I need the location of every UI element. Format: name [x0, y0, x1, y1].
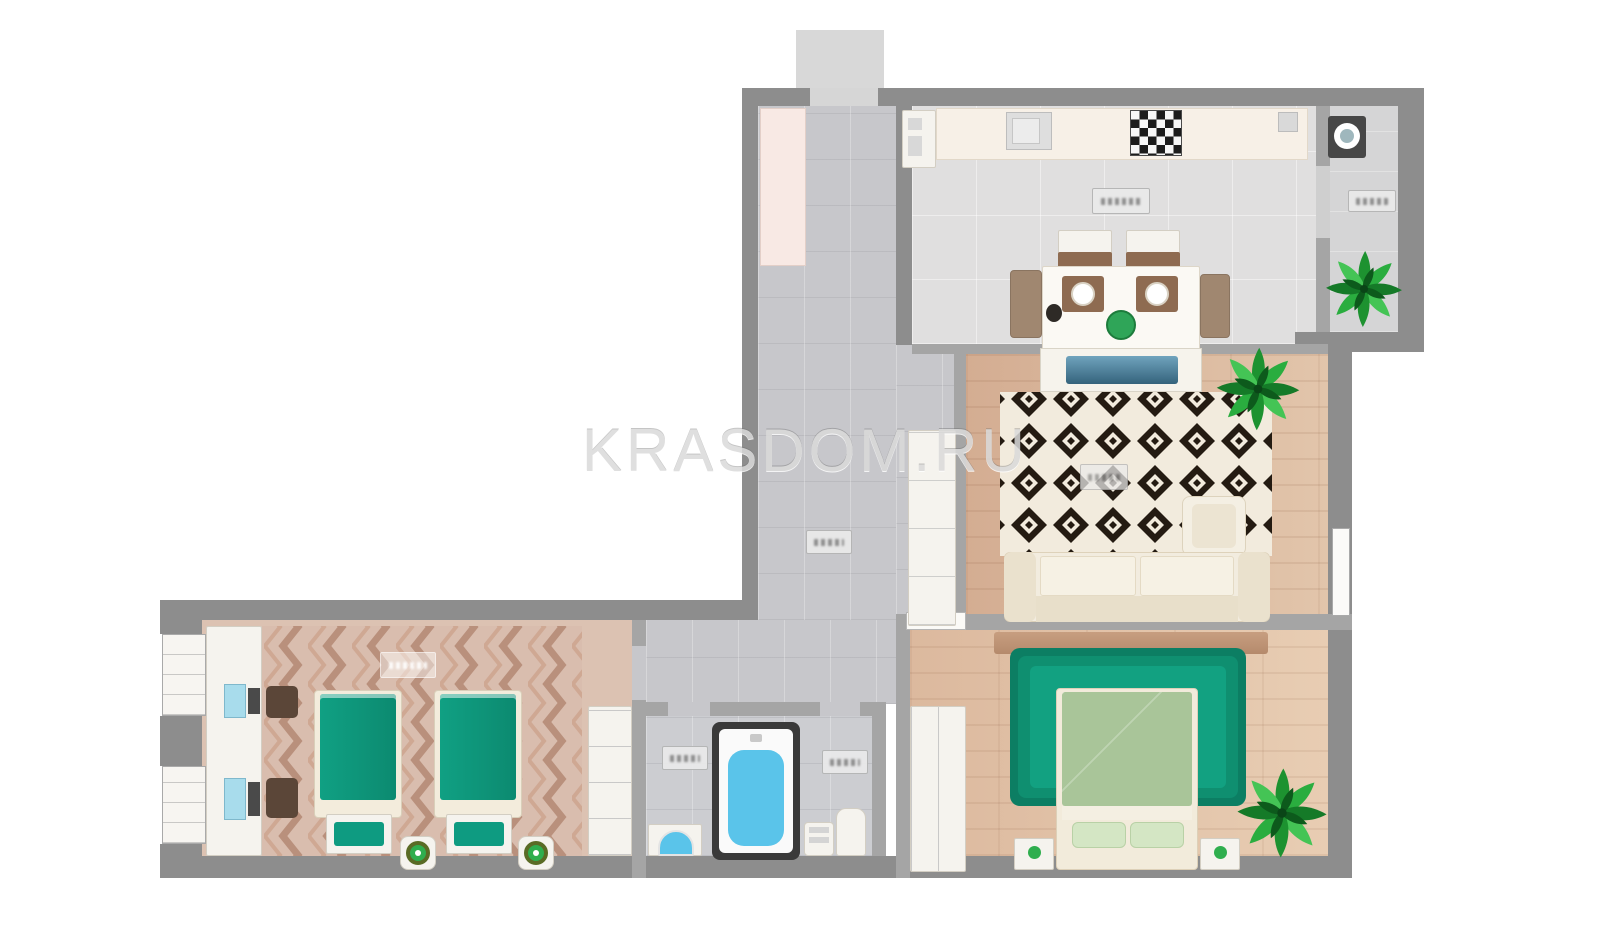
area-label-smudge — [1088, 474, 1120, 481]
wardrobe — [588, 706, 632, 856]
sofa-armrest — [1238, 552, 1270, 622]
floor-plan-canvas: KRASDOM.RU — [0, 0, 1600, 933]
area-label-smudge — [389, 662, 427, 669]
hall-cabinet — [908, 430, 956, 626]
nightstand-plant — [1214, 846, 1227, 859]
entry-closet — [760, 108, 806, 266]
bathtub-water — [728, 750, 784, 846]
area-label-smudge — [830, 759, 861, 766]
entry-door-opening — [810, 88, 878, 106]
area-label-badge-balcony — [1348, 190, 1396, 212]
desk-drawer-pull — [248, 782, 260, 816]
area-label-badge-bathroom — [662, 746, 708, 770]
bench-box-cushion — [334, 822, 384, 846]
fridge-detail — [908, 136, 922, 156]
desk-glass — [224, 778, 246, 820]
stool-button — [415, 850, 421, 856]
area-label-smudge — [1356, 198, 1388, 205]
wall-bathroom-right — [872, 702, 886, 856]
area-label-smudge — [670, 755, 701, 762]
double-bed-duvet — [1062, 692, 1192, 806]
desk-drawer-pull — [248, 688, 260, 714]
wall-pier-3 — [160, 844, 202, 878]
wardrobe — [910, 706, 966, 872]
washing-machine-drum — [1340, 129, 1354, 143]
area-label-badge-wc — [822, 750, 868, 774]
wall-balcony-right — [1398, 88, 1424, 352]
sofa-back — [1036, 596, 1238, 622]
dining-chair-left — [1010, 270, 1042, 338]
dining-chair-top — [1126, 230, 1180, 254]
dining-chair-top — [1058, 230, 1112, 254]
area-label-smudge — [814, 539, 845, 546]
balcony-door-opening — [1316, 166, 1330, 238]
sofa-cushion — [1140, 556, 1234, 596]
twin-bed-blanket — [320, 694, 396, 800]
desk-chair — [266, 686, 298, 718]
tv-screen — [1066, 356, 1178, 384]
kids-door-opening — [632, 646, 646, 700]
window — [1332, 528, 1350, 616]
wall-corridor-left — [742, 95, 758, 620]
area-label-badge-kids-room — [380, 652, 436, 678]
desk-glass — [224, 684, 246, 718]
wall-leftwing-top — [162, 600, 756, 620]
desk-console — [206, 626, 262, 856]
dining-chair-right — [1200, 274, 1230, 338]
armchair-seat — [1192, 504, 1236, 548]
wall-dining-living-a — [912, 344, 1044, 354]
plate — [1071, 282, 1095, 306]
wall-pier-1 — [160, 600, 202, 634]
wall-pier-2 — [160, 716, 202, 766]
pillow — [1072, 822, 1126, 848]
wall-bedroom-left — [896, 630, 910, 878]
window — [162, 766, 206, 844]
fridge-detail — [908, 118, 922, 130]
area-label-badge-kitchen — [1092, 188, 1150, 214]
bathtub-faucet — [750, 734, 762, 742]
stool-button — [533, 850, 539, 856]
twin-bed-blanket — [440, 694, 516, 800]
window — [162, 634, 206, 716]
bathroom-door-opening — [668, 702, 710, 716]
bench-box-cushion — [454, 822, 504, 846]
area-label-badge-hallway — [806, 530, 852, 554]
area-label-smudge — [1101, 198, 1140, 205]
double-bed-fold — [1062, 806, 1192, 820]
pillow — [1130, 822, 1184, 848]
kitchen-sink-basin — [1012, 118, 1040, 144]
kitchen-counter — [936, 108, 1308, 160]
water-heater — [836, 808, 866, 856]
toilet-tank-detail — [809, 827, 829, 833]
wc-door-opening — [820, 702, 860, 716]
nightstand-plant — [1028, 846, 1041, 859]
sofa-cushion — [1040, 556, 1136, 596]
kettle — [1046, 304, 1062, 322]
desk-chair — [266, 778, 298, 818]
green-bowl — [1106, 310, 1136, 340]
counter-appliance — [1278, 112, 1298, 132]
area-label-badge-living — [1080, 464, 1128, 490]
wall-dining-living-b — [1200, 344, 1328, 354]
stove-cooktop — [1130, 110, 1182, 156]
sofa-armrest — [1004, 552, 1036, 622]
plate — [1145, 282, 1169, 306]
toilet-tank-detail — [809, 837, 829, 843]
